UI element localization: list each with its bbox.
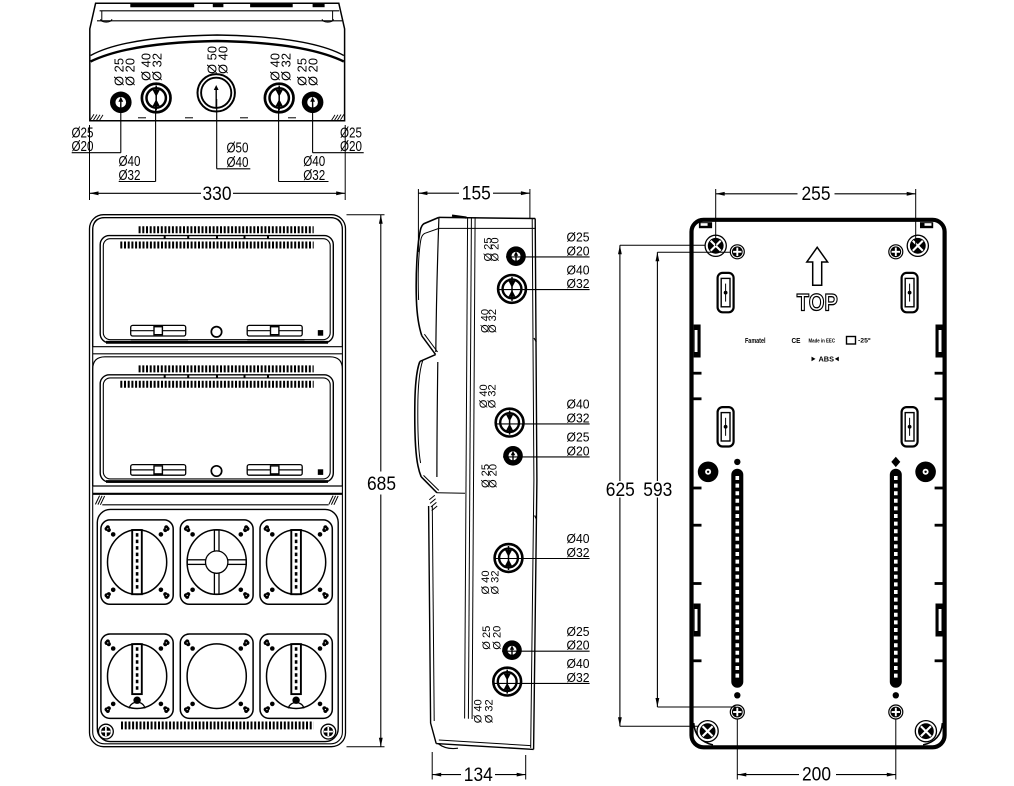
svg-text:Ø 32: Ø 32 — [487, 309, 499, 333]
svg-text:Ø20: Ø20 — [72, 139, 94, 155]
svg-text:Ø 20: Ø 20 — [490, 238, 502, 262]
svg-text:593: 593 — [643, 479, 672, 501]
svg-text:330: 330 — [203, 183, 232, 205]
svg-text:155: 155 — [462, 182, 491, 204]
svg-text:Ø 32: Ø 32 — [483, 699, 495, 723]
svg-text:Ø20: Ø20 — [340, 139, 362, 155]
svg-text:Ø 32: Ø 32 — [279, 53, 294, 81]
svg-text:Made in EEC: Made in EEC — [809, 339, 836, 345]
svg-text:Ø20: Ø20 — [567, 639, 590, 653]
svg-text:685: 685 — [367, 473, 396, 495]
svg-text:Ø 32: Ø 32 — [489, 571, 501, 595]
svg-text:Ø32: Ø32 — [119, 168, 141, 184]
svg-text:Ø20: Ø20 — [567, 244, 590, 258]
svg-text:Ø 20: Ø 20 — [492, 626, 504, 650]
svg-text:Ø40: Ø40 — [567, 398, 590, 412]
svg-text:Ø32: Ø32 — [567, 277, 590, 291]
svg-text:Ø40: Ø40 — [227, 155, 249, 171]
svg-text:Ø 20: Ø 20 — [123, 58, 138, 86]
svg-text:625: 625 — [606, 479, 635, 501]
svg-text:Ø 20: Ø 20 — [306, 58, 321, 86]
svg-text:-25º: -25º — [858, 338, 871, 345]
svg-text:Famatel: Famatel — [745, 338, 766, 345]
svg-text:Ø25: Ø25 — [567, 431, 590, 445]
svg-text:Ø40: Ø40 — [567, 657, 590, 671]
svg-text:ABS: ABS — [819, 357, 835, 364]
svg-text:Ø 32: Ø 32 — [486, 384, 498, 408]
svg-text:Ø25: Ø25 — [567, 231, 590, 245]
svg-text:Ø32: Ø32 — [567, 546, 590, 560]
svg-text:Ø 32: Ø 32 — [150, 53, 165, 81]
svg-text:255: 255 — [802, 183, 831, 205]
svg-text:Ø32: Ø32 — [303, 168, 325, 184]
svg-text:Ø40: Ø40 — [567, 532, 590, 546]
svg-text:Ø25: Ø25 — [567, 625, 590, 639]
svg-text:Ø32: Ø32 — [567, 671, 590, 685]
svg-text:Ø 20: Ø 20 — [488, 464, 500, 488]
svg-text:Ø40: Ø40 — [567, 263, 590, 277]
svg-text:134: 134 — [464, 764, 493, 786]
svg-text:Ø 40: Ø 40 — [216, 46, 231, 74]
svg-text:CE: CE — [792, 338, 801, 345]
svg-text:TOP: TOP — [797, 290, 838, 317]
svg-text:Ø32: Ø32 — [567, 411, 590, 425]
svg-text:200: 200 — [802, 764, 831, 786]
svg-text:Ø20: Ø20 — [567, 444, 590, 458]
